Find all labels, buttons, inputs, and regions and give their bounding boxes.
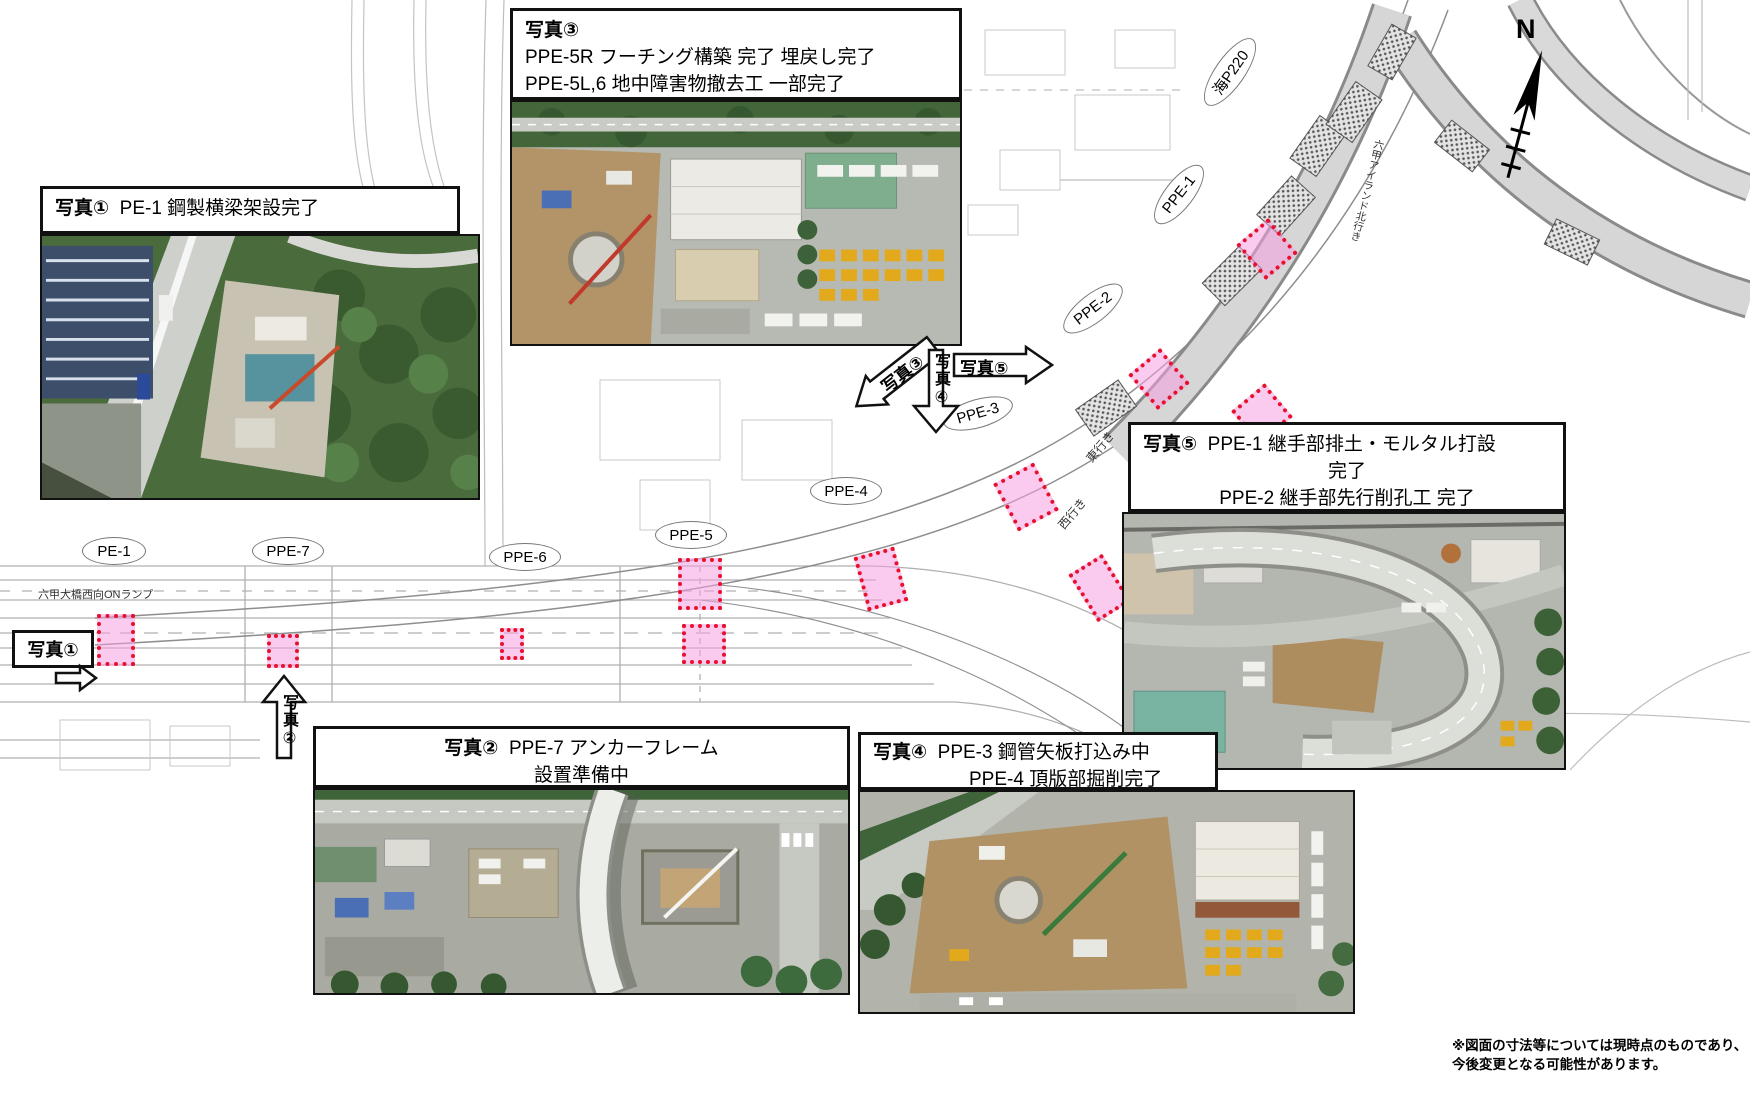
photo5-caption: 写真⑤ PPE-1 継手部排土・モルタル打設 完了 PPE-2 継手部先行削孔工… [1128,422,1566,512]
photo3-caption-title: 写真③ [525,17,947,44]
plan-label-on-ramp: 六甲大橋西向ONランプ [38,586,153,602]
photo1-caption-title: 写真① [55,198,109,219]
construction-progress-figure: PE-1 PPE-7 PPE-6 PPE-5 PPE-4 PPE-3 PPE-2… [0,0,1750,1108]
pier-marker-ppe5-lower [682,624,726,664]
arrow-photo1 [56,664,96,692]
photo4-image [858,790,1355,1014]
arrow-label-photo1-text: 写真① [27,636,78,662]
arrow-label-photo1: 写真① [12,630,94,668]
photo5-caption-line2: 完了 [1143,458,1551,485]
photo4-caption-line1: PPE-3 鋼管矢板打込み中 [938,742,1150,763]
photo1-caption: 写真① PE-1 鋼製横梁架設完了 [40,186,460,234]
photo4-caption: 写真④ PPE-3 鋼管矢板打込み中 PPE-4 頂版部掘削完了 [858,732,1218,790]
pier-marker-ppe6 [500,628,524,660]
photo4-caption-title: 写真④ [873,742,927,763]
arrow-photo2: 写真② [263,676,305,758]
photo5-caption-line1: PPE-1 継手部排土・モルタル打設 [1208,434,1496,455]
arrow-label-photo2-text: 写真② [276,694,300,748]
plan-label-ppe5: PPE-5 [655,521,727,549]
plan-label-pe1: PE-1 [82,537,146,565]
disclaimer-note: ※図面の寸法等については現時点のものであり、 今後変更となる可能性があります。 [1452,1036,1747,1074]
arrow-photo4: 写真④ [914,350,958,432]
photo1-caption-text: PE-1 鋼製横梁架設完了 [120,198,320,219]
photo3-caption-line1: PPE-5R フーチング構築 完了 埋戻し完了 [525,44,947,71]
photo1-image [40,234,480,500]
disclaimer-line2: 今後変更となる可能性があります。 [1452,1055,1747,1074]
photo5-caption-title: 写真⑤ [1143,434,1197,455]
photo2-caption-line2: 設置準備中 [328,762,835,789]
plan-label-ppe6: PPE-6 [489,543,561,571]
pier-marker-ppe5-upper [678,558,722,610]
arrow-photo5: 写真⑤ [954,346,1052,384]
photo5-caption-line3: PPE-2 継手部先行削孔工 完了 [1143,485,1551,512]
photo4-caption-line2: PPE-4 頂版部掘削完了 [873,766,1203,793]
pier-marker-pe1 [97,614,135,666]
photo3-caption-line2: PPE-5L,6 地中障害物撤去工 一部完了 [525,71,947,98]
pier-marker-ppe7 [267,634,299,668]
photo2-caption-line1: PPE-7 アンカーフレーム [509,738,719,759]
photo2-caption-title: 写真② [444,738,498,759]
compass-needle-icon [1470,14,1580,184]
arrow-label-photo4-text: 写真④ [928,353,952,407]
disclaimer-line1: ※図面の寸法等については現時点のものであり、 [1452,1036,1747,1055]
photo3-caption: 写真③ PPE-5R フーチング構築 完了 埋戻し完了 PPE-5L,6 地中障… [510,8,962,100]
arrow-label-photo5-text: 写真⑤ [960,354,1008,379]
photo2-image [313,788,850,995]
plan-label-ppe7: PPE-7 [252,537,324,565]
north-arrow: N [1470,14,1580,184]
right-arrow-icon [56,666,96,690]
plan-label-ppe4: PPE-4 [810,477,882,505]
photo2-caption: 写真② PPE-7 アンカーフレーム 設置準備中 [313,726,850,788]
photo3-image [510,100,962,346]
